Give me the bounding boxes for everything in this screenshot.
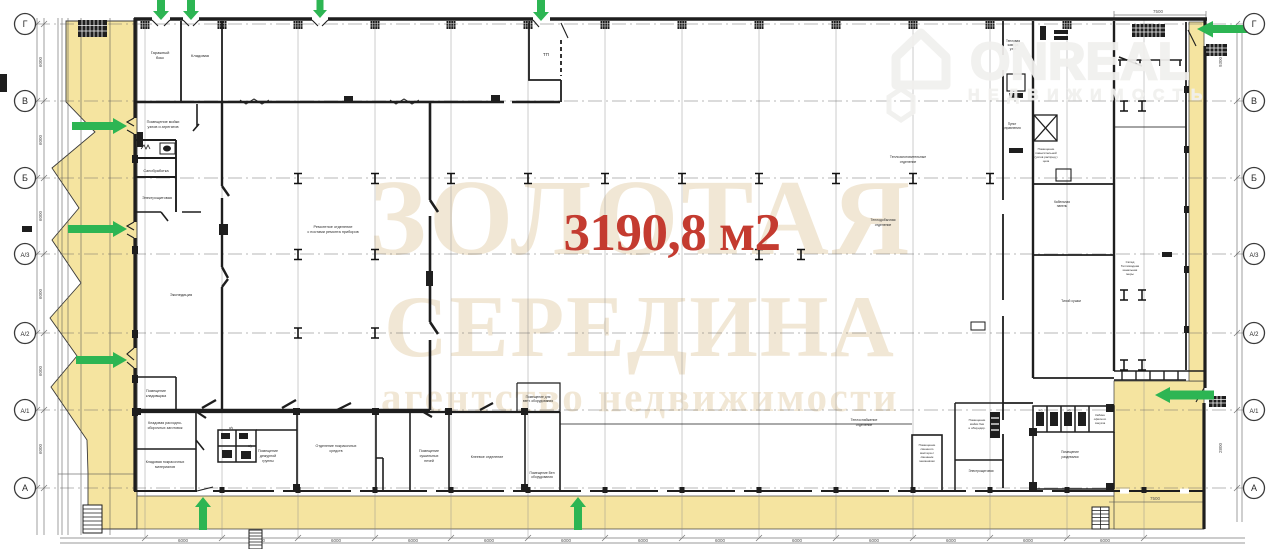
svg-text:кладовщика: кладовщика: [146, 394, 166, 398]
svg-text:ONREAL: ONREAL: [970, 33, 1190, 91]
svg-text:Помещение: Помещение: [1061, 450, 1079, 454]
svg-text:вент. оборудования: вент. оборудования: [523, 399, 553, 403]
svg-text:дежурной: дежурной: [260, 454, 276, 458]
svg-text:Помещение: Помещение: [258, 449, 278, 453]
svg-text:6000: 6000: [38, 134, 43, 145]
svg-text:Санобработка: Санобработка: [143, 169, 169, 173]
svg-text:А/2: А/2: [20, 332, 30, 338]
svg-text:материалов: материалов: [155, 465, 175, 469]
svg-text:Помещение мойки: Помещение мойки: [147, 120, 180, 124]
svg-text:3190,8 м2: 3190,8 м2: [563, 204, 780, 262]
svg-text:отделение: отделение: [900, 160, 917, 164]
svg-text:6000: 6000: [792, 538, 803, 543]
svg-text:6000: 6000: [38, 210, 43, 221]
svg-text:раздевалки: раздевалки: [1062, 455, 1079, 459]
svg-text:узлов и агрегатов: узлов и агрегатов: [147, 125, 178, 129]
svg-text:6000: 6000: [638, 538, 649, 543]
svg-text:6000: 6000: [38, 288, 43, 299]
svg-text:Теплозаготовительные: Теплозаготовительные: [890, 155, 926, 159]
svg-text:6000: 6000: [38, 365, 43, 376]
svg-text:6000: 6000: [869, 538, 880, 543]
svg-text:Помещение: Помещение: [419, 449, 439, 453]
svg-text:группы: группы: [262, 459, 274, 463]
svg-text:отделение: отделение: [856, 423, 873, 427]
svg-text:В: В: [22, 96, 28, 106]
svg-text:с/у: с/у: [248, 444, 252, 448]
svg-text:А: А: [22, 483, 28, 493]
svg-text:6000: 6000: [715, 538, 726, 543]
svg-text:средств: средств: [329, 449, 342, 453]
svg-text:оборудования: оборудования: [531, 475, 553, 479]
svg-text:Кладовая покрасочных: Кладовая покрасочных: [146, 460, 185, 464]
svg-text:7500: 7500: [1153, 9, 1164, 14]
svg-text:А/2: А/2: [1249, 332, 1259, 338]
svg-text:Тихой сушки: Тихой сушки: [1061, 299, 1081, 303]
svg-text:Кладовая расходно-: Кладовая расходно-: [148, 421, 183, 425]
svg-text:ТП: ТП: [543, 52, 549, 57]
svg-text:с постами ремонта приборов: с постами ремонта приборов: [307, 230, 358, 234]
svg-text:А/1: А/1: [20, 409, 30, 415]
svg-text:Клеевое отделение: Клеевое отделение: [471, 455, 504, 459]
svg-text:Кладовая: Кладовая: [191, 53, 209, 58]
svg-text:панель: панель: [1057, 204, 1068, 208]
svg-text:сборочных заготовок: сборочных заготовок: [148, 426, 183, 430]
svg-text:6000: 6000: [331, 538, 342, 543]
svg-text:А/1: А/1: [1249, 409, 1259, 415]
svg-text:Г: Г: [23, 19, 28, 29]
svg-text:А/3: А/3: [1249, 253, 1259, 259]
svg-text:НЕДВИЖИМОСТЬ: НЕДВИЖИМОСТЬ: [968, 87, 1211, 104]
svg-text:6000: 6000: [38, 443, 43, 454]
svg-text:с/у: с/у: [229, 426, 233, 430]
svg-text:2800: 2800: [1218, 442, 1223, 453]
svg-text:Электрощитовая: Электрощитовая: [968, 469, 993, 473]
svg-text:Экспедиция: Экспедиция: [170, 292, 192, 297]
svg-text:Отделение покрасочных: Отделение покрасочных: [316, 444, 357, 448]
svg-text:Теплоснабжение: Теплоснабжение: [851, 418, 878, 422]
svg-text:Теплодобычная: Теплодобычная: [870, 218, 895, 222]
svg-text:управления: управления: [1003, 126, 1021, 130]
svg-text:Электрощитовая: Электрощитовая: [142, 196, 172, 200]
svg-text:7500: 7500: [1150, 496, 1161, 501]
svg-text:отделение: отделение: [875, 223, 892, 227]
svg-text:6000: 6000: [38, 56, 43, 67]
svg-text:6000: 6000: [1100, 538, 1111, 543]
svg-text:печей: печей: [424, 459, 434, 463]
svg-text:цеха: цеха: [1043, 159, 1050, 163]
svg-text:СЕРЕДИНА: СЕРЕДИНА: [384, 279, 896, 376]
svg-text:Г: Г: [1252, 19, 1257, 29]
svg-text:Помещение: Помещение: [146, 389, 166, 393]
svg-text:сушильных: сушильных: [420, 454, 439, 458]
svg-text:6000: 6000: [946, 538, 957, 543]
svg-text:6000: 6000: [178, 538, 189, 543]
svg-text:бокс: бокс: [156, 55, 164, 60]
svg-text:В: В: [1251, 96, 1257, 106]
svg-text:А/3: А/3: [20, 253, 30, 259]
svg-text:санузла: санузла: [1095, 421, 1106, 425]
svg-text:меры: меры: [1126, 272, 1134, 276]
svg-text:Ремонтное отделение: Ремонтное отделение: [314, 225, 353, 229]
svg-text:9300: 9300: [1218, 56, 1223, 67]
svg-text:Б: Б: [22, 173, 28, 183]
svg-text:А: А: [1251, 483, 1257, 493]
svg-text:6000: 6000: [484, 538, 495, 543]
svg-text:и обмундир.: и обмундир.: [968, 426, 985, 430]
svg-text:с/у: с/у: [1067, 408, 1071, 412]
svg-text:6000: 6000: [408, 538, 419, 543]
svg-text:механиком: механиком: [919, 459, 934, 463]
svg-text:6000: 6000: [561, 538, 572, 543]
svg-text:6000: 6000: [1023, 538, 1034, 543]
svg-text:Б: Б: [1251, 173, 1257, 183]
svg-text:с/у: с/у: [1039, 408, 1043, 412]
